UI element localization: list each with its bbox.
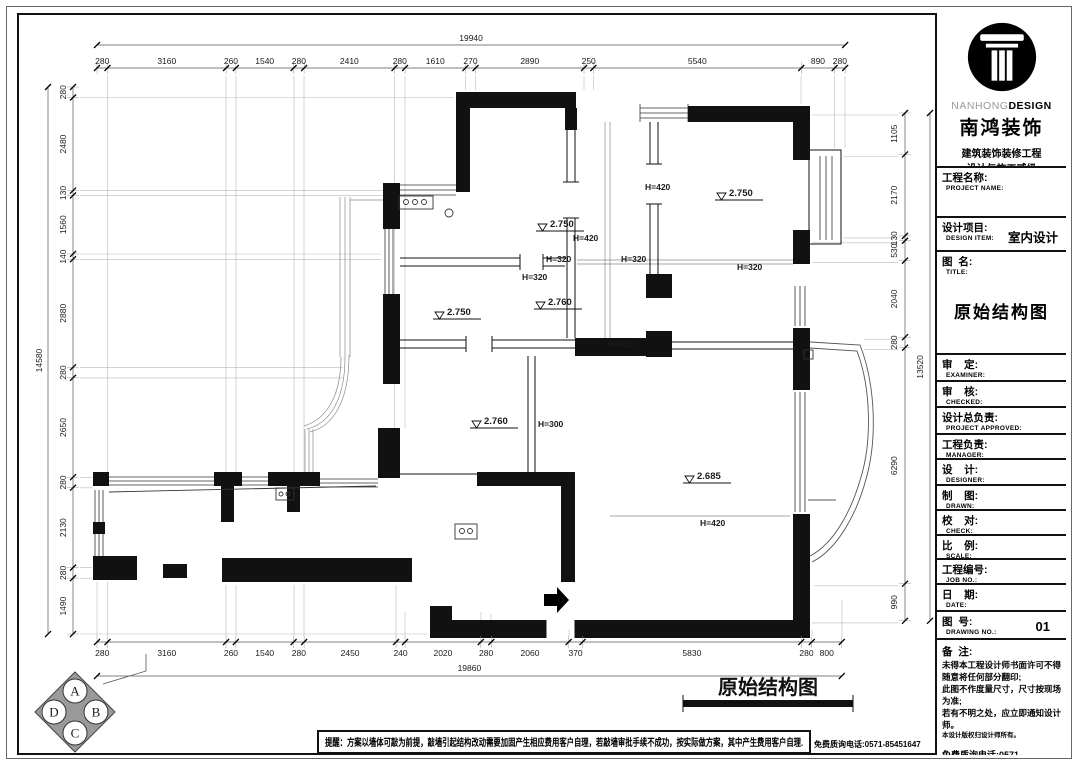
svg-text:280: 280 <box>58 85 68 99</box>
date-cell: 日 期: DATE: <box>937 585 1066 612</box>
svg-text:H=420: H=420 <box>700 518 726 528</box>
notes-hotline: 免费质询电话:0571-85451647 <box>942 748 1061 755</box>
svg-text:530: 530 <box>889 243 899 257</box>
entry-arrow-icon <box>544 587 569 613</box>
svg-text:280: 280 <box>799 648 813 658</box>
svg-text:H=320: H=320 <box>621 254 647 264</box>
check-label: 校 对: <box>942 513 1061 528</box>
project-approved-label: 设计总负责: <box>942 410 1061 425</box>
checked-label: 审 核: <box>942 384 1061 399</box>
svg-text:3160: 3160 <box>157 56 176 66</box>
svg-text:130: 130 <box>889 231 899 245</box>
job-no-cell: 工程编号: JOB NO.: <box>937 560 1066 585</box>
drawing-title-sub: TITLE: <box>946 269 1061 276</box>
svg-text:890: 890 <box>811 56 825 66</box>
svg-text:2040: 2040 <box>889 289 899 308</box>
svg-text:2130: 2130 <box>58 518 68 537</box>
notes-cell: 备 注: 未得本工程设计师书面许可不得随意将任何部分翻印; 此图不作度量尺寸，尺… <box>937 640 1066 755</box>
svg-text:2450: 2450 <box>341 648 360 658</box>
check-sub: CHECK: <box>946 528 1061 535</box>
scale-label: 比 例: <box>942 538 1061 553</box>
svg-text:1105: 1105 <box>889 124 899 143</box>
svg-text:2650: 2650 <box>58 418 68 437</box>
svg-text:2.750: 2.750 <box>550 219 574 230</box>
note-line-small: 本设计版权归设计师所有。 <box>942 731 1061 741</box>
plan-caption: 原始结构图 <box>683 675 853 712</box>
svg-text:H=420: H=420 <box>608 339 634 349</box>
svg-text:1490: 1490 <box>58 596 68 615</box>
floor-plan: 原始结构图 提醒：方案以墙体可敲为前提，敲墙引起结构改动需要加固产生相应费用客户… <box>0 0 1080 767</box>
check-cell: 校 对: CHECK: <box>937 511 1066 536</box>
svg-text:280: 280 <box>95 648 109 658</box>
svg-text:2880: 2880 <box>58 304 68 323</box>
svg-text:2020: 2020 <box>433 648 452 658</box>
designer-cell: 设 计: DESIGNER: <box>937 460 1066 486</box>
reminder-strip: 提醒：方案以墙体可敲为前提，敲墙引起结构改动需要加固产生相应费用客户自理，若敲墙… <box>318 731 921 753</box>
svg-text:C: C <box>71 726 80 741</box>
svg-text:250: 250 <box>582 56 596 66</box>
examiner-sub: EXAMINER: <box>946 372 1061 379</box>
svg-text:2.750: 2.750 <box>447 307 471 318</box>
note-line: 若有不明之处，应立即通知设计师。 <box>942 707 1061 731</box>
svg-text:280: 280 <box>889 335 899 349</box>
svg-text:280: 280 <box>393 56 407 66</box>
svg-text:H=420: H=420 <box>645 182 671 192</box>
svg-text:D: D <box>49 705 58 720</box>
date-sub: DATE: <box>946 602 1061 609</box>
reminder-text: 提醒：方案以墙体可敲为前提，敲墙引起结构改动需要加固产生相应费用客户自理，若敲墙… <box>325 736 803 749</box>
plan-caption-text: 原始结构图 <box>718 675 818 699</box>
svg-text:13520: 13520 <box>915 355 925 379</box>
svg-text:280: 280 <box>833 56 847 66</box>
manager-sub: MANAGER: <box>946 452 1061 459</box>
company-logo-icon <box>966 21 1038 93</box>
svg-text:H=320: H=320 <box>737 262 763 272</box>
brand-latin: NANHONGDESIGN <box>942 100 1061 112</box>
svg-text:2.760: 2.760 <box>548 297 572 308</box>
manager-cell: 工程负责: MANAGER: <box>937 435 1066 460</box>
scale-cell: 比 例: SCALE: <box>937 536 1066 560</box>
svg-text:280: 280 <box>479 648 493 658</box>
brand-latin-light: NANHONG <box>951 100 1008 112</box>
brand-latin-bold: DESIGN <box>1008 100 1051 112</box>
svg-text:H=320: H=320 <box>546 254 572 264</box>
design-item-value: 室内设计 <box>1008 227 1058 246</box>
svg-text:800: 800 <box>820 648 834 658</box>
designer-label: 设 计: <box>942 462 1061 477</box>
svg-text:5830: 5830 <box>682 648 701 658</box>
svg-text:1610: 1610 <box>426 56 445 66</box>
beam-lines <box>304 122 793 516</box>
notes-label: 备 注: <box>942 644 1061 659</box>
drawing-no-cell: 图 号: DRAWING NO.: 01 <box>937 612 1066 640</box>
svg-text:H=420: H=420 <box>573 233 599 243</box>
note-line: 未得本工程设计师书面许可不得随意将任何部分翻印; <box>942 659 1061 683</box>
svg-text:14580: 14580 <box>34 348 44 372</box>
job-no-sub: JOB NO.: <box>946 577 1061 584</box>
svg-text:2890: 2890 <box>520 56 539 66</box>
designer-sub: DESIGNER: <box>946 477 1061 484</box>
drawing-title-value: 原始结构图 <box>942 298 1061 323</box>
dim-extension-lines <box>80 76 898 636</box>
drawing-no-value: 01 <box>1036 619 1050 634</box>
structural-walls <box>93 92 810 638</box>
svg-text:130: 130 <box>58 186 68 200</box>
project-approved-cell: 设计总负责: PROJECT APPROVED: <box>937 408 1066 435</box>
checked-cell: 审 核: CHECKED: <box>937 382 1066 408</box>
drawn-label: 制 图: <box>942 488 1061 503</box>
checked-sub: CHECKED: <box>946 399 1061 406</box>
svg-text:990: 990 <box>889 595 899 609</box>
drawing-sheet: 原始结构图 提醒：方案以墙体可敲为前提，敲墙引起结构改动需要加固产生相应费用客户… <box>0 0 1080 767</box>
project-name-sub: PROJECT NAME: <box>946 185 1061 192</box>
svg-text:2170: 2170 <box>889 185 899 204</box>
svg-text:260: 260 <box>224 56 238 66</box>
svg-text:280: 280 <box>58 365 68 379</box>
manager-label: 工程负责: <box>942 437 1061 452</box>
company-logo-cell: NANHONGDESIGN 南鸿装饰 建筑装饰装修工程 设计与施工贰级 编NO：… <box>937 13 1066 168</box>
project-name-label: 工程名称: <box>942 170 1061 185</box>
brand-cn-name: 南鸿装饰 <box>942 113 1061 140</box>
brand-tagline-2: 设计与施工贰级 <box>942 160 1061 168</box>
svg-text:2.750: 2.750 <box>729 188 753 199</box>
svg-text:1540: 1540 <box>255 648 274 658</box>
svg-text:280: 280 <box>95 56 109 66</box>
svg-text:280: 280 <box>292 56 306 66</box>
examiner-cell: 审 定: EXAMINER: <box>937 355 1066 382</box>
svg-text:240: 240 <box>393 648 407 658</box>
svg-text:280: 280 <box>292 648 306 658</box>
svg-text:1560: 1560 <box>58 215 68 234</box>
svg-text:1540: 1540 <box>255 56 274 66</box>
svg-text:19860: 19860 <box>458 663 482 673</box>
project-approved-sub: PROJECT APPROVED: <box>946 425 1061 432</box>
svg-text:370: 370 <box>568 648 582 658</box>
svg-text:5540: 5540 <box>688 56 707 66</box>
balcony-curve <box>808 342 873 562</box>
bay-window <box>809 150 841 244</box>
design-item-cell: 设计项目: DESIGN ITEM: 室内设计 <box>937 218 1066 252</box>
svg-text:270: 270 <box>463 56 477 66</box>
partition-walls <box>400 122 793 638</box>
svg-text:280: 280 <box>58 475 68 489</box>
svg-text:H=300: H=300 <box>538 419 564 429</box>
svg-text:2.685: 2.685 <box>697 471 721 482</box>
svg-text:2.760: 2.760 <box>484 416 508 427</box>
drawing-title-label: 图 名: <box>942 254 1061 269</box>
svg-text:2060: 2060 <box>521 648 540 658</box>
footer-hotline-text: 免费质询电话:0571-85451647 <box>814 739 921 749</box>
brand-tagline-1: 建筑装饰装修工程 <box>942 145 1061 160</box>
project-name-cell: 工程名称: PROJECT NAME: <box>937 168 1066 218</box>
drawn-sub: DRAWN: <box>946 503 1061 510</box>
scale-sub: SCALE: <box>946 553 1061 560</box>
drawn-cell: 制 图: DRAWN: <box>937 486 1066 511</box>
svg-text:280: 280 <box>58 566 68 580</box>
job-no-label: 工程编号: <box>942 562 1061 577</box>
note-line: 此图不作度量尺寸，尺寸按现场为准; <box>942 683 1061 707</box>
svg-text:260: 260 <box>224 648 238 658</box>
svg-text:2480: 2480 <box>58 134 68 153</box>
svg-text:3160: 3160 <box>157 648 176 658</box>
title-block: NANHONGDESIGN 南鸿装饰 建筑装饰装修工程 设计与施工贰级 编NO：… <box>935 13 1066 755</box>
svg-text:A: A <box>70 684 80 699</box>
examiner-label: 审 定: <box>942 357 1061 372</box>
date-label: 日 期: <box>942 587 1061 602</box>
svg-text:2410: 2410 <box>340 56 359 66</box>
svg-text:19940: 19940 <box>459 33 483 43</box>
svg-text:B: B <box>92 705 101 720</box>
svg-text:6290: 6290 <box>889 456 899 475</box>
orientation-compass: ABCD <box>35 654 146 752</box>
svg-text:H=320: H=320 <box>522 272 548 282</box>
svg-text:140: 140 <box>58 249 68 263</box>
drawing-title-cell: 图 名: TITLE: 原始结构图 <box>937 252 1066 355</box>
